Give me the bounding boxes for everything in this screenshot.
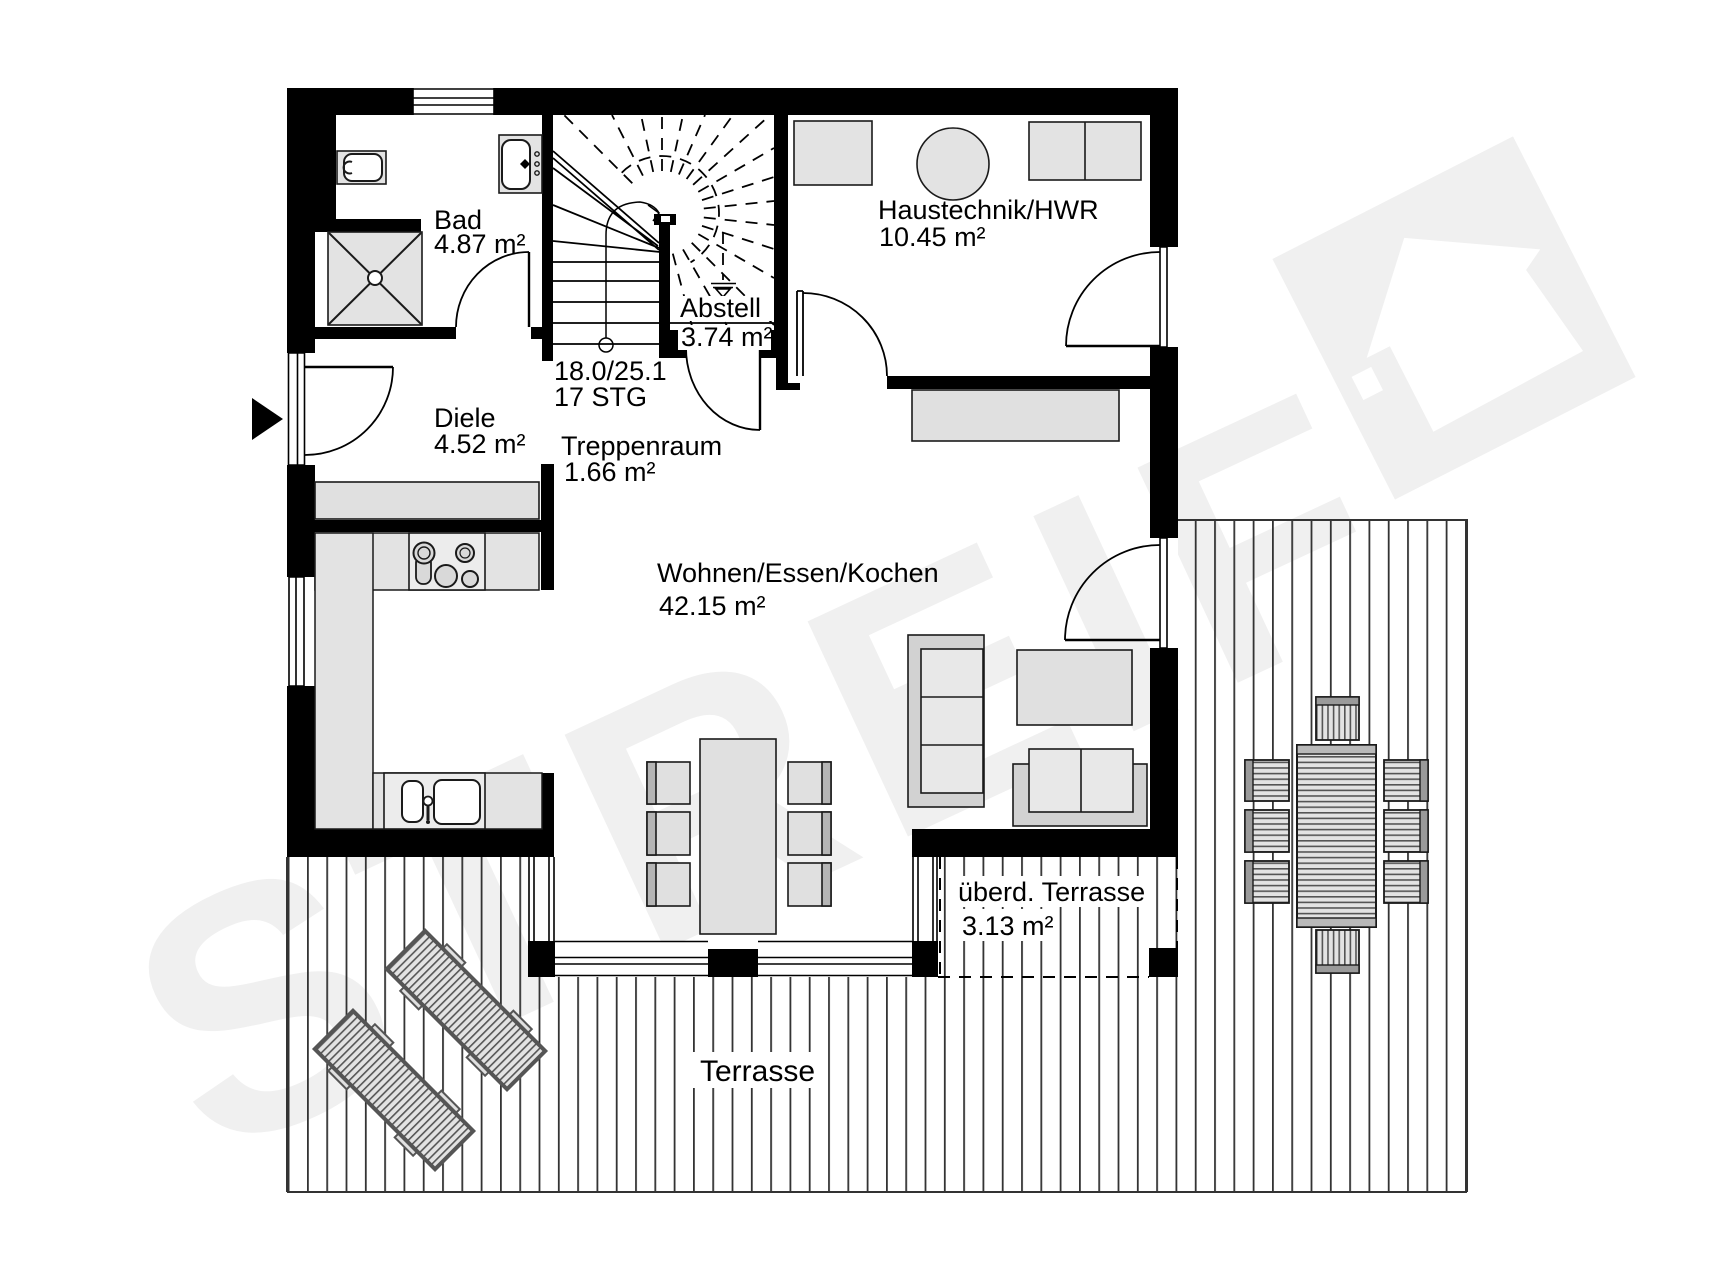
svg-text:42.15 m²: 42.15 m² [659,591,766,621]
svg-text:4.87 m²: 4.87 m² [434,229,526,259]
svg-text:Terrasse: Terrasse [700,1055,815,1088]
svg-text:überd. Terrasse: überd. Terrasse [958,877,1145,907]
svg-text:Haustechnik/HWR: Haustechnik/HWR [878,195,1099,225]
svg-text:10.45 m²: 10.45 m² [879,222,986,252]
svg-text:1.66 m²: 1.66 m² [564,457,656,487]
svg-text:17 STG: 17 STG [554,382,647,412]
svg-text:Abstell: Abstell [680,293,761,323]
svg-text:Wohnen/Essen/Kochen: Wohnen/Essen/Kochen [657,558,939,588]
svg-text:3.13 m²: 3.13 m² [962,911,1054,941]
svg-text:3.74 m²: 3.74 m² [681,322,773,352]
svg-text:4.52 m²: 4.52 m² [434,429,526,459]
